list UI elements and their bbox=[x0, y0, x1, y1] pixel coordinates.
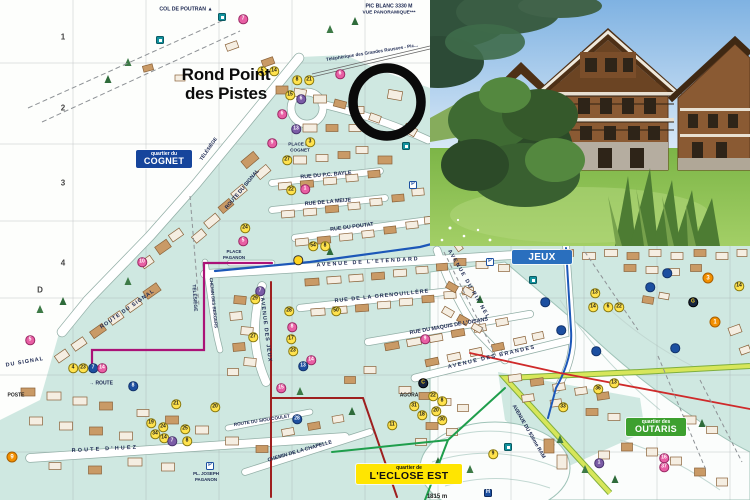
quartier-label-eclose: quartier de L'ECLOSE EST bbox=[356, 464, 462, 484]
map-badge: 8 bbox=[128, 381, 138, 391]
map-badge: 37 bbox=[659, 462, 669, 472]
quartier-label-jeux: JEUX bbox=[512, 250, 572, 264]
map-badge: P bbox=[409, 181, 417, 189]
map-badge: 24 bbox=[240, 223, 250, 233]
map-badge: 20 bbox=[431, 406, 441, 416]
map-badge bbox=[540, 297, 550, 307]
map-badge: 19 bbox=[146, 418, 156, 428]
map-badge bbox=[591, 346, 601, 356]
map-badge: 27 bbox=[282, 155, 292, 165]
quartier-label-outaris: quartier des OUTARIS bbox=[626, 418, 686, 436]
quartier-cognet-name: COGNET bbox=[141, 157, 187, 167]
map-badge: 8 bbox=[437, 396, 447, 406]
map-badge: 14 bbox=[734, 281, 744, 291]
map-badge bbox=[156, 36, 164, 44]
resort-map-screenshot: 1234D COL DE POUTRAN ▲PIC BLANC 3330 MVU… bbox=[0, 0, 750, 500]
map-badge: 5 bbox=[238, 236, 248, 246]
map-badge: 13 bbox=[590, 288, 600, 298]
map-badge bbox=[293, 255, 303, 265]
map-badge bbox=[402, 142, 410, 150]
map-badge: 31 bbox=[409, 401, 419, 411]
map-badge bbox=[645, 282, 655, 292]
map-badge: P bbox=[486, 258, 494, 266]
map-badge: 6 bbox=[603, 302, 613, 312]
quartier-jeux-name: JEUX bbox=[517, 252, 567, 263]
map-badge: 54 bbox=[308, 241, 318, 251]
map-badge bbox=[662, 268, 672, 278]
map-badge: 1 bbox=[300, 184, 310, 194]
map-badge: 28 bbox=[292, 414, 302, 424]
map-badge: 33 bbox=[558, 402, 568, 412]
map-badge: 3 bbox=[305, 137, 315, 147]
map-badge: 13 bbox=[609, 378, 619, 388]
map-title-line1: Rond Point bbox=[150, 65, 302, 84]
map-badge: 13 bbox=[298, 361, 308, 371]
map-badge: 24 bbox=[158, 422, 168, 432]
map-badge: 6 bbox=[277, 109, 287, 119]
map-badge: 36 bbox=[593, 384, 603, 394]
map-badge: 10 bbox=[137, 257, 147, 267]
quartier-label-cognet: quartier du COGNET bbox=[136, 150, 192, 168]
map-badge: 8 bbox=[287, 322, 297, 332]
map-badge bbox=[218, 13, 226, 21]
map-badge bbox=[529, 276, 537, 284]
map-badge: 8 bbox=[182, 436, 192, 446]
map-badge: 22 bbox=[614, 302, 624, 312]
map-badge: 1 bbox=[594, 458, 604, 468]
map-badge: 9 bbox=[420, 334, 430, 344]
map-badge: 25 bbox=[180, 424, 190, 434]
map-badge: 30 bbox=[437, 415, 447, 425]
map-badge bbox=[504, 443, 512, 451]
map-badge: 4 bbox=[68, 363, 78, 373]
map-badge: 20 bbox=[210, 402, 220, 412]
map-badge: 14 bbox=[97, 363, 107, 373]
map-badge: 6 bbox=[335, 69, 345, 79]
map-badge: 8 bbox=[320, 241, 330, 251]
map-badge: 18 bbox=[417, 410, 427, 420]
map-badge: 29 bbox=[250, 294, 260, 304]
quartier-outaris-name: OUTARIS bbox=[631, 425, 681, 435]
map-title-line2: des Pistes bbox=[150, 84, 302, 103]
map-badge: 28 bbox=[284, 306, 294, 316]
map-badge: 15 bbox=[276, 383, 286, 393]
map-badge: 17 bbox=[286, 334, 296, 344]
map-badge: 23 bbox=[78, 363, 88, 373]
map-badge: 22 bbox=[286, 185, 296, 195]
map-badge: H bbox=[484, 489, 492, 497]
map-badge: 21 bbox=[304, 75, 314, 85]
map-badge: 3 bbox=[703, 273, 714, 284]
map-badge: 7 bbox=[238, 14, 248, 24]
map-badge: 14 bbox=[588, 302, 598, 312]
map-badge: 21 bbox=[171, 399, 181, 409]
map-badge: 11 bbox=[387, 420, 397, 430]
map-badge: 9 bbox=[267, 138, 277, 148]
map-badge: P bbox=[206, 462, 214, 470]
map-badge: 7 bbox=[167, 436, 177, 446]
map-badge: 27 bbox=[248, 332, 258, 342]
map-badge: 9 bbox=[488, 449, 498, 459]
map-badge: C bbox=[418, 378, 428, 388]
map-badge: G bbox=[688, 297, 698, 307]
map-badge bbox=[670, 343, 680, 353]
map-badge: 9 bbox=[7, 452, 18, 463]
map-badge bbox=[556, 325, 566, 335]
map-title: Rond Point des Pistes bbox=[150, 65, 302, 103]
map-badge: 50 bbox=[331, 306, 341, 316]
chalet-photo-inset bbox=[430, 0, 750, 246]
quartier-eclose-name: L'ECLOSE EST bbox=[361, 471, 457, 483]
map-badge: 23 bbox=[288, 346, 298, 356]
map-badge: 1 bbox=[710, 317, 721, 328]
map-badge: 13 bbox=[291, 124, 301, 134]
map-badge: 5 bbox=[25, 335, 35, 345]
